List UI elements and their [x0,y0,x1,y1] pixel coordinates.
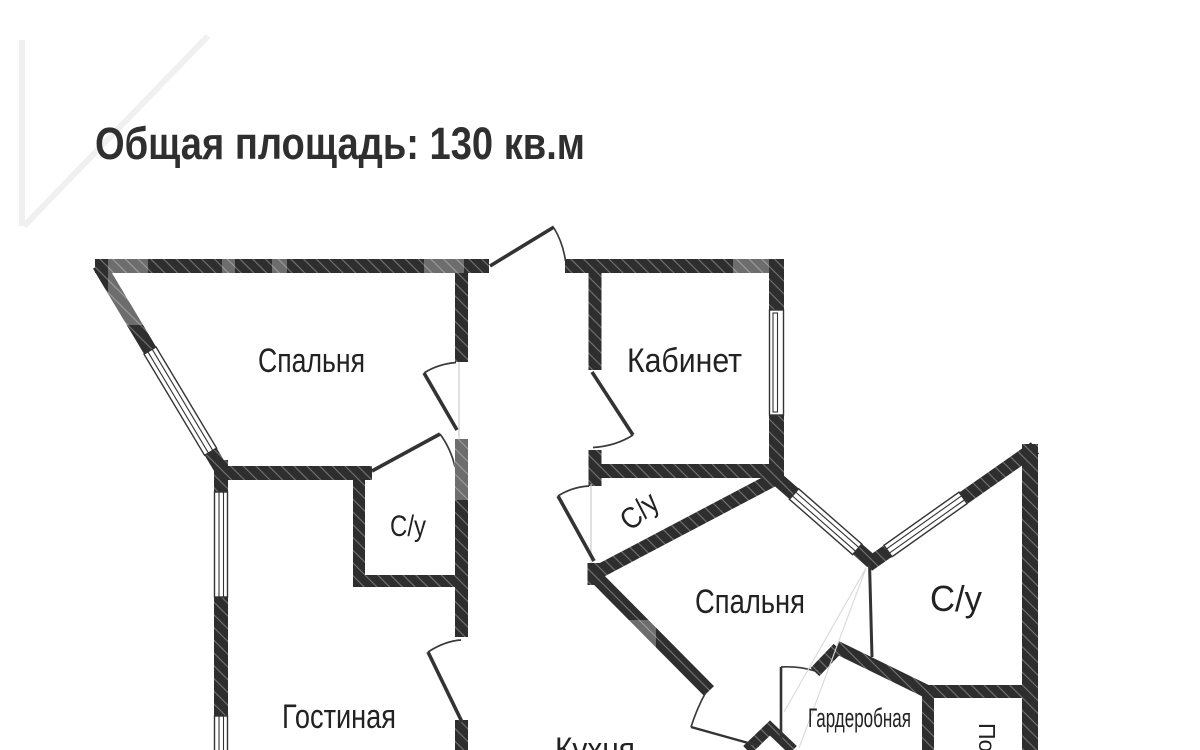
svg-text:С/у: С/у [930,578,982,619]
svg-text:С/у: С/у [390,510,426,543]
svg-text:Спальня: Спальня [258,342,365,380]
svg-text:Кухня: Кухня [555,731,635,750]
svg-text:Кабинет: Кабинет [627,342,742,380]
svg-text:С/у: С/у [614,486,666,537]
svg-text:Общая площадь: 130 кв.м: Общая площадь: 130 кв.м [95,118,585,169]
svg-text:Спальня: Спальня [695,583,805,621]
svg-text:Гардеробная: Гардеробная [808,703,911,733]
svg-text:Постирочная: Постирочная [974,723,1000,750]
svg-text:Гостиная: Гостиная [282,698,396,736]
